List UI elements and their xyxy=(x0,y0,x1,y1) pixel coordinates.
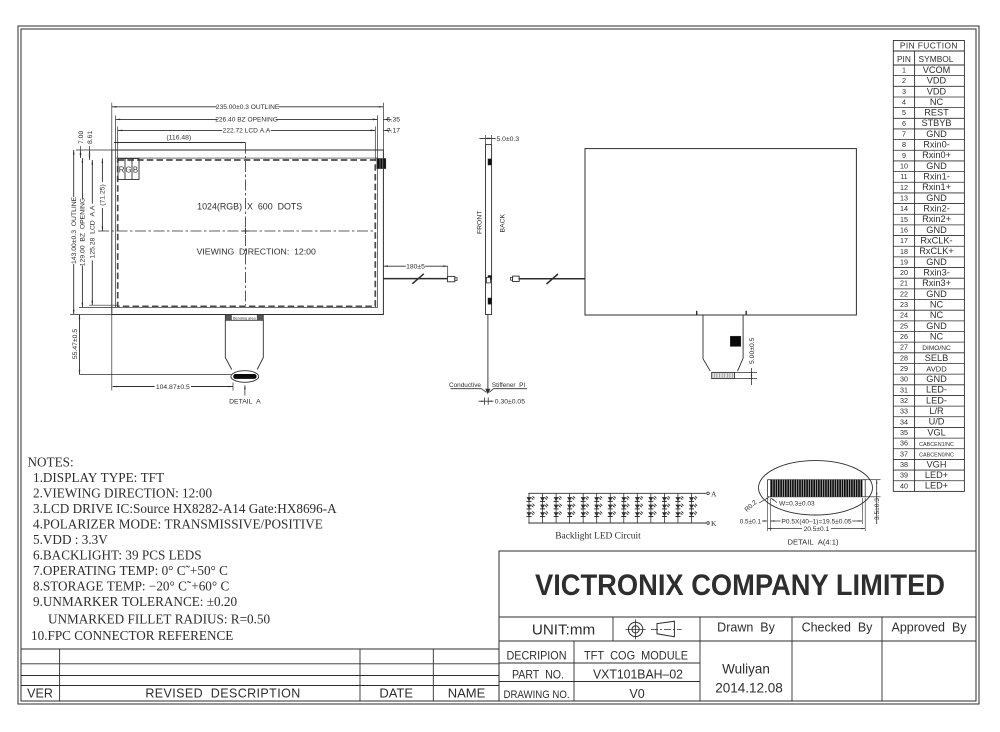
svg-text:5.00±0.5: 5.00±0.5 xyxy=(749,337,756,364)
svg-text:REST: REST xyxy=(924,108,949,118)
svg-text:26: 26 xyxy=(900,332,908,341)
svg-text:GND: GND xyxy=(926,161,947,171)
svg-text:K: K xyxy=(711,519,717,528)
svg-text:129.00 BZ OPENING: 129.00 BZ OPENING xyxy=(80,198,87,266)
svg-text:LED+: LED+ xyxy=(925,481,948,491)
svg-text:Checked By: Checked By xyxy=(802,620,874,634)
svg-text:10.FPC CONNECTOR REFERENCE: 10.FPC CONNECTOR REFERENCE xyxy=(31,628,233,643)
svg-text:125.28 LCD A.A: 125.28 LCD A.A xyxy=(90,205,97,258)
svg-text:37: 37 xyxy=(900,449,908,458)
svg-text:Wuliyan: Wuliyan xyxy=(722,662,770,677)
svg-text:Rxin3-: Rxin3- xyxy=(923,267,950,277)
svg-text:8: 8 xyxy=(902,140,906,149)
svg-text:143.00±0.3 OUTLINE: 143.00±0.3 OUTLINE xyxy=(71,196,78,264)
svg-text:LED-: LED- xyxy=(926,385,947,395)
svg-text:B: B xyxy=(133,166,138,175)
svg-text:5: 5 xyxy=(902,108,906,117)
svg-text:5.0±0.3: 5.0±0.3 xyxy=(497,136,520,143)
svg-text:9.UNMARKER TOLERANCE: ±0.20: 9.UNMARKER TOLERANCE: ±0.20 xyxy=(33,594,237,609)
svg-text:G: G xyxy=(125,166,131,175)
svg-text:8.61: 8.61 xyxy=(87,131,94,144)
svg-text:REVISED DESCRIPTION: REVISED DESCRIPTION xyxy=(145,686,300,700)
svg-text:RxCLK+: RxCLK+ xyxy=(919,246,953,256)
svg-text:DETAIL A(4:1): DETAIL A(4:1) xyxy=(788,538,839,547)
svg-text:16: 16 xyxy=(900,225,908,234)
svg-text:1.DISPLAY TYPE: TFT: 1.DISPLAY TYPE: TFT xyxy=(33,470,164,485)
svg-text:GND: GND xyxy=(926,257,947,267)
svg-text:4: 4 xyxy=(902,98,906,107)
svg-text:VICTRONIX COMPANY LIMITED: VICTRONIX COMPANY LIMITED xyxy=(535,569,945,602)
svg-text:11: 11 xyxy=(900,172,907,181)
svg-text:Rxin1-: Rxin1- xyxy=(923,172,950,182)
svg-text:38: 38 xyxy=(900,460,908,469)
svg-text:BACK: BACK xyxy=(500,213,507,232)
svg-text:7.17: 7.17 xyxy=(387,128,400,135)
svg-text:7.00: 7.00 xyxy=(78,131,85,144)
svg-text:33: 33 xyxy=(900,407,908,416)
svg-text:LED-: LED- xyxy=(926,395,947,405)
svg-text:(71.25): (71.25) xyxy=(100,184,107,206)
svg-text:VIEWING DIRECTION: 12:00: VIEWING DIRECTION: 12:00 xyxy=(197,247,316,257)
svg-text:Rxin2-: Rxin2- xyxy=(923,204,950,214)
svg-text:GND: GND xyxy=(926,129,947,139)
svg-text:31: 31 xyxy=(900,385,908,394)
svg-text:Conductive: Conductive xyxy=(449,382,481,389)
svg-text:9: 9 xyxy=(902,151,906,160)
svg-text:5.VDD : 3.3V: 5.VDD : 3.3V xyxy=(33,532,108,547)
svg-text:28: 28 xyxy=(900,353,908,362)
svg-text:VXT101BAH–02: VXT101BAH–02 xyxy=(593,668,683,682)
svg-text:DIMO/NC: DIMO/NC xyxy=(922,345,951,352)
svg-text:29: 29 xyxy=(900,364,908,373)
svg-text:22: 22 xyxy=(900,289,908,298)
svg-text:DECRIPION: DECRIPION xyxy=(507,649,567,663)
svg-text:32: 32 xyxy=(900,396,908,405)
svg-text:3.5±0.3: 3.5±0.3 xyxy=(874,498,881,520)
svg-text:0.30±0.05: 0.30±0.05 xyxy=(495,399,525,406)
svg-text:NOTES:: NOTES: xyxy=(28,455,74,470)
svg-text:VGH: VGH xyxy=(927,459,947,469)
svg-text:VDD: VDD xyxy=(927,76,947,86)
svg-text:15: 15 xyxy=(900,215,908,224)
svg-text:1024(RGB) X 600 DOTS: 1024(RGB) X 600 DOTS xyxy=(197,202,302,212)
svg-text:19: 19 xyxy=(900,257,908,266)
svg-text:FRONT: FRONT xyxy=(477,211,484,234)
svg-text:36: 36 xyxy=(900,439,908,448)
svg-text:L/R: L/R xyxy=(929,406,944,416)
svg-text:DATE: DATE xyxy=(379,685,413,700)
svg-text:Backlight LED Circuit: Backlight LED Circuit xyxy=(555,532,641,542)
svg-text:1: 1 xyxy=(902,66,906,75)
svg-text:Approved By: Approved By xyxy=(891,620,967,634)
svg-text:7.OPERATING TEMP: 0° C˜+50° C: 7.OPERATING TEMP: 0° C˜+50° C xyxy=(33,563,228,578)
svg-text:3.LCD DRIVE IC:Source HX8282-A: 3.LCD DRIVE IC:Source HX8282-A14 Gate:HX… xyxy=(33,501,337,516)
svg-text:SYMBOL: SYMBOL xyxy=(919,54,954,64)
svg-text:W=0.3±0.03: W=0.3±0.03 xyxy=(779,500,815,507)
svg-text:STBYB: STBYB xyxy=(921,118,951,128)
svg-text:Bending area: Bending area xyxy=(233,316,256,320)
svg-text:Rxin2+: Rxin2+ xyxy=(922,214,951,224)
svg-text:VCOM: VCOM xyxy=(923,65,951,75)
svg-text:UNIT:mm: UNIT:mm xyxy=(532,622,595,639)
svg-text:RxCLK-: RxCLK- xyxy=(920,235,952,245)
svg-text:GND: GND xyxy=(926,289,947,299)
svg-text:35: 35 xyxy=(900,428,908,437)
svg-text:18: 18 xyxy=(900,247,908,256)
svg-text:12: 12 xyxy=(900,183,908,192)
svg-text:6: 6 xyxy=(902,119,906,128)
svg-text:25: 25 xyxy=(900,321,908,330)
svg-text:17: 17 xyxy=(900,236,908,245)
svg-text:30: 30 xyxy=(900,375,908,384)
svg-text:GND: GND xyxy=(926,225,947,235)
svg-text:CABCEN1/NC: CABCEN1/NC xyxy=(919,442,954,448)
svg-text:PIN FUCTION: PIN FUCTION xyxy=(900,41,958,51)
svg-text:DRAWING NO.: DRAWING NO. xyxy=(504,689,570,701)
svg-text:NC: NC xyxy=(930,299,944,309)
svg-text:5.35: 5.35 xyxy=(387,117,400,124)
svg-text:2: 2 xyxy=(902,76,906,85)
svg-text:LED+: LED+ xyxy=(925,470,948,480)
svg-text:GND: GND xyxy=(926,321,947,331)
svg-text:GND: GND xyxy=(926,374,947,384)
svg-text:NC: NC xyxy=(930,310,944,320)
svg-text:2014.12.08: 2014.12.08 xyxy=(715,681,783,696)
svg-text:20: 20 xyxy=(900,268,908,277)
svg-text:34: 34 xyxy=(900,417,908,426)
svg-text:8.STORAGE TEMP: −20° C˜+60° C: 8.STORAGE TEMP: −20° C˜+60° C xyxy=(33,579,229,594)
svg-text:3: 3 xyxy=(902,87,906,96)
svg-text:55.47±0.5: 55.47±0.5 xyxy=(72,329,79,359)
svg-text:4.POLARIZER MODE: TRANSMISSIVE: 4.POLARIZER MODE: TRANSMISSIVE/POSITIVE xyxy=(33,517,323,532)
svg-text:V0: V0 xyxy=(629,687,644,701)
svg-text:PIN: PIN xyxy=(897,54,911,64)
svg-text:Rxin0-: Rxin0- xyxy=(923,140,950,150)
svg-text:Rxin3+: Rxin3+ xyxy=(922,278,951,288)
svg-text:6.BACKLIGHT: 39 PCS LEDS: 6.BACKLIGHT: 39 PCS LEDS xyxy=(33,548,202,563)
svg-text:24: 24 xyxy=(900,311,908,320)
svg-text:TFT COG MODULE: TFT COG MODULE xyxy=(584,649,688,663)
svg-text:20.5±0.1: 20.5±0.1 xyxy=(804,526,830,533)
svg-text:NC: NC xyxy=(930,97,944,107)
svg-text:DETAIL A: DETAIL A xyxy=(229,399,261,406)
svg-text:AVDD: AVDD xyxy=(926,364,947,373)
svg-text:VDD: VDD xyxy=(927,86,947,96)
svg-text:VGL: VGL xyxy=(927,427,945,437)
svg-text:39: 39 xyxy=(900,471,908,480)
svg-text:U/D: U/D xyxy=(929,417,945,427)
svg-text:14: 14 xyxy=(900,204,908,213)
svg-text:10: 10 xyxy=(900,161,908,170)
svg-text:2.VIEWING DIRECTION: 12:00: 2.VIEWING DIRECTION: 12:00 xyxy=(33,486,213,501)
svg-text:21: 21 xyxy=(900,279,908,288)
svg-text:7: 7 xyxy=(902,129,906,138)
svg-text:PART NO.: PART NO. xyxy=(512,668,564,682)
svg-text:(116.48): (116.48) xyxy=(166,135,191,142)
svg-text:104.87±0.5: 104.87±0.5 xyxy=(156,384,190,391)
svg-text:0.5±0.1: 0.5±0.1 xyxy=(740,518,762,525)
svg-text:R: R xyxy=(119,166,125,175)
svg-text:A: A xyxy=(711,489,717,498)
svg-text:40: 40 xyxy=(900,481,908,490)
svg-text:UNMARKED FILLET RADIUS: R=0.50: UNMARKED FILLET RADIUS: R=0.50 xyxy=(48,612,271,627)
svg-text:Stiffener PI: Stiffener PI xyxy=(492,382,525,389)
svg-text:CABCEN0/NC: CABCEN0/NC xyxy=(919,453,954,459)
svg-text:VER: VER xyxy=(27,686,53,700)
svg-text:Rxin1+: Rxin1+ xyxy=(922,182,951,192)
svg-text:NAME: NAME xyxy=(448,685,486,700)
svg-text:P0.5X(40–1)=19.5±0.05: P0.5X(40–1)=19.5±0.05 xyxy=(781,518,851,525)
svg-text:180±5: 180±5 xyxy=(406,264,425,271)
svg-text:NC: NC xyxy=(930,331,944,341)
svg-text:GND: GND xyxy=(926,193,947,203)
svg-text:Rxin0+: Rxin0+ xyxy=(922,150,951,160)
svg-text:222.72 LCD A.A: 222.72 LCD A.A xyxy=(223,128,271,135)
svg-text:27: 27 xyxy=(900,343,908,352)
svg-text:23: 23 xyxy=(900,300,908,309)
svg-text:13: 13 xyxy=(900,193,908,202)
svg-text:SELB: SELB xyxy=(925,353,949,363)
svg-text:226.40 BZ OPENING: 226.40 BZ OPENING xyxy=(215,117,278,124)
svg-text:Drawn By: Drawn By xyxy=(717,620,775,634)
svg-text:235.00±0.3 OUTLINE: 235.00±0.3 OUTLINE xyxy=(216,104,280,111)
